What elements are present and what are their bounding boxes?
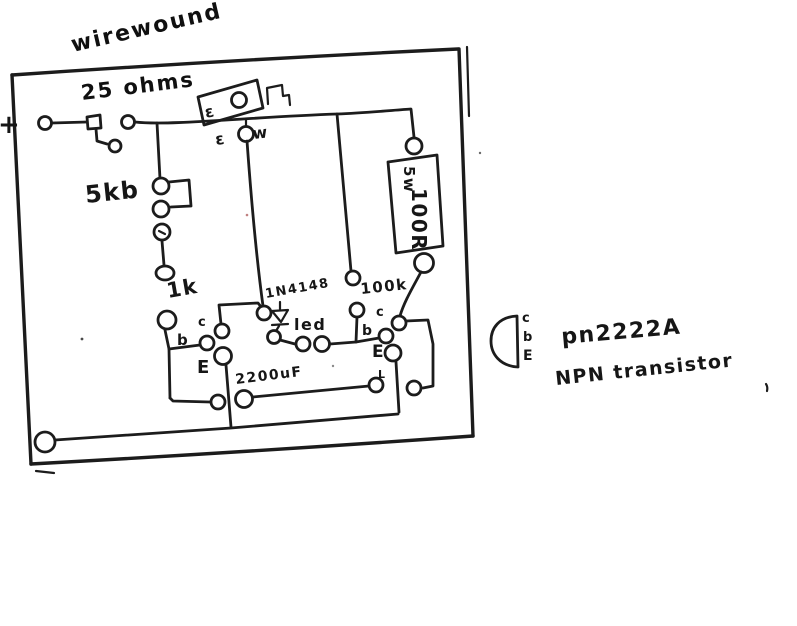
q1-collector-pad — [215, 324, 229, 338]
q1-c-label: c — [198, 315, 207, 330]
trimmer-5kb-pads — [153, 178, 191, 280]
part-number-label: pn2222A — [560, 315, 682, 350]
capacitor-wire — [253, 386, 369, 397]
pad-hole — [153, 201, 169, 217]
q2-b-label: b — [362, 323, 374, 339]
transistor-q2-pads — [236, 316, 434, 412]
q2-c-label: c — [376, 305, 385, 320]
hundredk-wire — [337, 114, 351, 271]
pad-hole — [407, 381, 421, 395]
pad-hole — [39, 117, 52, 130]
pkg-c-label: c — [522, 311, 531, 326]
pad-hole — [35, 432, 55, 452]
q1-e-label: E — [197, 357, 211, 378]
pad-hole — [415, 254, 434, 273]
q2-stray-mark: L — [378, 368, 387, 381]
trimmer-drop-wire — [157, 123, 160, 179]
resistor-100k-branch — [337, 114, 360, 285]
pad-hole — [257, 306, 271, 320]
pad-hole — [346, 271, 360, 285]
power-resistor-value: 100R — [407, 188, 431, 251]
resistor-100k-label: 100k — [360, 275, 409, 298]
pot-mark-top: ε — [203, 101, 217, 122]
pad-hole — [109, 140, 121, 152]
plus-terminal-mark: + — [0, 110, 21, 140]
led-pad-hole — [296, 337, 310, 351]
device-type-label: NPN transistor — [554, 349, 734, 390]
resistor-1k-label: 1k — [165, 274, 200, 303]
pad-hole — [153, 178, 169, 194]
q1-base-pad — [200, 336, 214, 350]
led-pad-hole — [315, 337, 330, 352]
wirewound-label: wirewound — [69, 0, 225, 58]
diode-label: 1N4148 — [264, 276, 331, 302]
q2-collector-loop-wire — [406, 320, 433, 388]
pad-hole — [158, 311, 176, 329]
scanned-circuit-sketch: + wirewound 25 ohms ε ε w 5kb 1k — [0, 0, 797, 626]
top-bus-wire — [135, 109, 414, 137]
square-pad — [87, 115, 101, 129]
diode-symbol — [272, 310, 288, 322]
pkg-b-label: b — [523, 330, 534, 345]
bracket-mark — [267, 85, 290, 105]
capacitor-pad — [236, 391, 253, 408]
pad-hole — [122, 116, 135, 129]
capacitor-label: 2200uF — [235, 364, 304, 388]
led-label: led — [294, 315, 326, 334]
q2-base-pad — [379, 329, 393, 343]
wiper-to-diode-wire — [247, 141, 263, 306]
pot-mark-wiper: w — [251, 122, 269, 143]
pkg-e-label: E — [523, 348, 534, 364]
pot-mark-mid: ε — [214, 129, 227, 149]
stray-comma-mark — [766, 384, 767, 391]
q1-emitter-pad — [215, 348, 232, 365]
pad-hole — [211, 395, 225, 409]
q2-emitter-pad — [385, 345, 401, 361]
trimmer-label: 5kb — [84, 175, 141, 209]
q1-b-label: b — [177, 331, 189, 349]
q2-e-label: E — [372, 342, 385, 362]
plus-label: + — [0, 110, 21, 140]
q1-base-branch-wire — [165, 330, 170, 398]
q2-collector-pad — [392, 316, 406, 330]
pad-hole — [406, 138, 422, 154]
diode-1n4148 — [247, 141, 288, 344]
pad-hole — [232, 93, 247, 108]
pad-hole — [268, 331, 281, 344]
ohms-label: 25 ohms — [80, 67, 196, 105]
to92-package-outline — [491, 316, 518, 367]
q1-collector-wire — [219, 303, 262, 324]
q2-emitter-wire — [396, 362, 399, 412]
q1-emitter-wire — [226, 365, 231, 427]
pad-hole — [350, 303, 364, 317]
